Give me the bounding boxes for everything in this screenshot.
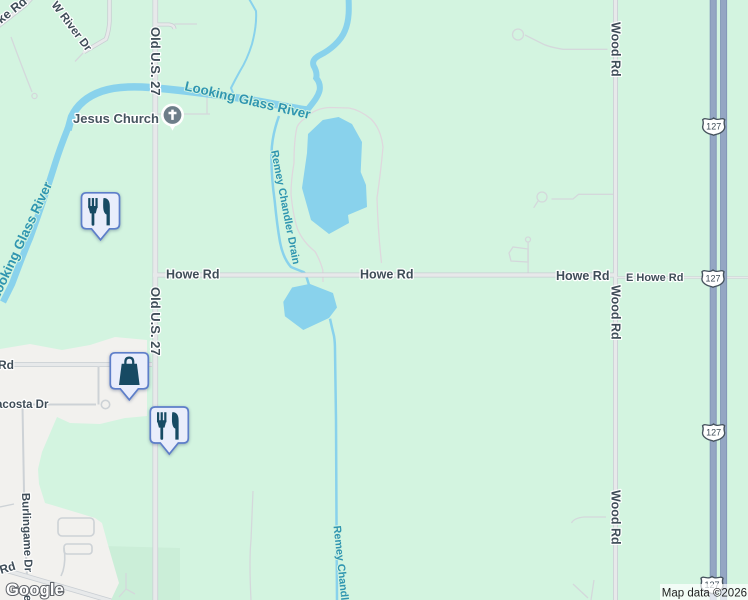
svg-text:Howe Rd: Howe Rd	[360, 268, 413, 282]
svg-text:Howe Rd: Howe Rd	[556, 269, 609, 283]
svg-text:Old U.S. 27: Old U.S. 27	[148, 287, 163, 356]
svg-text:Howe Rd: Howe Rd	[166, 268, 219, 282]
svg-text:E Howe Rd: E Howe Rd	[626, 272, 683, 284]
svg-text:Google: Google	[6, 581, 64, 599]
svg-text:Wood Rd: Wood Rd	[609, 490, 623, 545]
svg-text:Lacosta Dr: Lacosta Dr	[0, 399, 49, 411]
svg-text:127: 127	[705, 273, 720, 283]
svg-text:Wood Rd: Wood Rd	[609, 22, 623, 77]
svg-text:127: 127	[706, 121, 721, 131]
svg-text:Map data ©2026: Map data ©2026	[662, 588, 747, 600]
svg-text:127: 127	[706, 427, 721, 437]
svg-text:Rd: Rd	[0, 358, 14, 372]
svg-text:Jesus Church: Jesus Church	[73, 111, 159, 126]
svg-text:Old U.S. 27: Old U.S. 27	[148, 27, 163, 96]
svg-text:Wood Rd: Wood Rd	[609, 285, 623, 340]
